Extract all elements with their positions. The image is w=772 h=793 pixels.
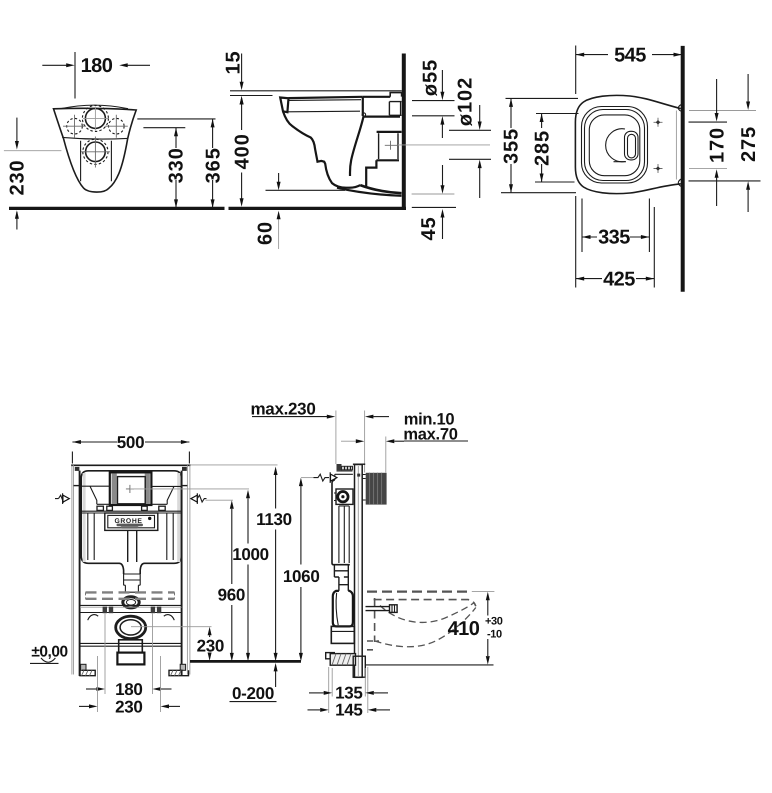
svg-text:960: 960 xyxy=(218,586,245,605)
svg-text:1130: 1130 xyxy=(256,510,292,529)
svg-text:365: 365 xyxy=(202,147,224,183)
svg-text:230: 230 xyxy=(7,159,29,195)
svg-text:335: 335 xyxy=(598,227,630,249)
svg-text:410: 410 xyxy=(448,618,480,640)
svg-text:170: 170 xyxy=(706,127,728,163)
svg-text:ø55: ø55 xyxy=(420,59,442,96)
svg-text:355: 355 xyxy=(501,128,523,164)
svg-text:230: 230 xyxy=(115,697,142,716)
svg-text:145: 145 xyxy=(335,701,362,720)
svg-text:15: 15 xyxy=(223,50,245,74)
svg-text:60: 60 xyxy=(255,221,277,245)
svg-text:180: 180 xyxy=(81,55,113,77)
svg-text:230: 230 xyxy=(197,636,224,655)
svg-text:-10: -10 xyxy=(487,629,502,641)
svg-text:545: 545 xyxy=(614,44,646,66)
svg-text:330: 330 xyxy=(166,147,188,183)
svg-text:0-200: 0-200 xyxy=(232,684,274,703)
svg-text:285: 285 xyxy=(531,130,553,166)
svg-text:275: 275 xyxy=(738,126,760,162)
svg-text:+30: +30 xyxy=(485,616,503,628)
svg-text:ø102: ø102 xyxy=(455,77,477,126)
svg-text:1060: 1060 xyxy=(283,567,320,586)
svg-text:180: 180 xyxy=(115,680,142,699)
svg-text:500: 500 xyxy=(117,433,144,452)
svg-text:±0,00: ±0,00 xyxy=(31,644,67,661)
svg-text:425: 425 xyxy=(603,268,635,290)
svg-text:max.230: max.230 xyxy=(250,400,315,419)
svg-text:400: 400 xyxy=(231,133,253,169)
svg-text:1000: 1000 xyxy=(232,545,269,564)
svg-text:45: 45 xyxy=(418,216,440,240)
